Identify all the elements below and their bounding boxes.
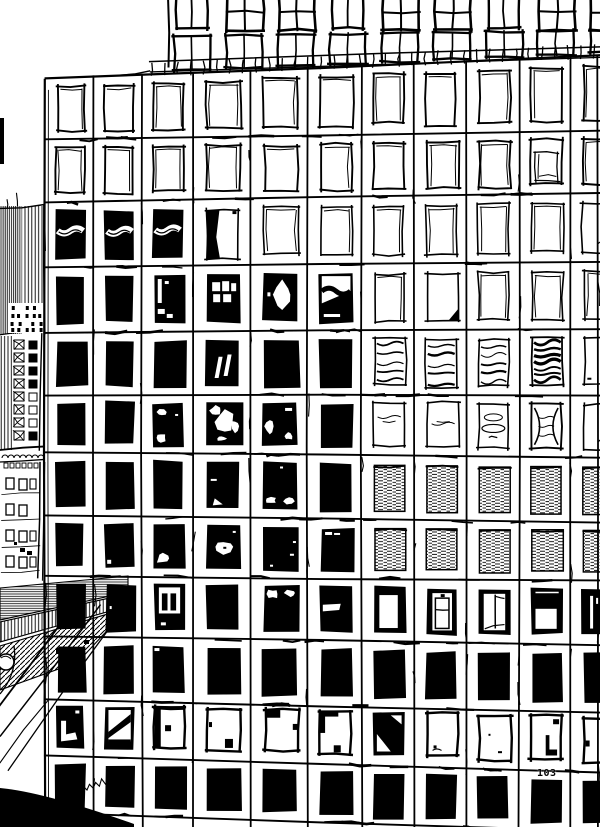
- facade-window: [153, 646, 184, 692]
- facade-window: [207, 525, 241, 568]
- facade-window: [263, 462, 297, 509]
- facade-window: [56, 277, 83, 325]
- facade-window: [479, 590, 510, 634]
- facade-window: [373, 402, 406, 448]
- facade-window: [318, 711, 352, 755]
- facade-window: [55, 146, 85, 194]
- facade-window: [530, 138, 564, 186]
- facade-window: [105, 708, 135, 750]
- facade-window: [320, 772, 353, 815]
- facade-window: [154, 584, 184, 630]
- facade-window: [58, 647, 86, 692]
- facade-window: [425, 652, 456, 699]
- facade-window: [426, 774, 456, 819]
- facade-window: [425, 272, 460, 321]
- facade-window: [478, 653, 509, 700]
- page-number: 103: [537, 768, 557, 779]
- facade-window: [320, 586, 352, 632]
- facade-window: [207, 769, 241, 811]
- facade-window: [477, 202, 510, 256]
- facade-window: [319, 340, 352, 388]
- facade-window: [106, 585, 136, 632]
- facade-window: [374, 465, 405, 511]
- facade-window: [103, 146, 133, 195]
- facade-window: [264, 586, 299, 632]
- facade-window: [104, 524, 134, 568]
- facade-window: [55, 461, 85, 506]
- facade-window: [373, 206, 405, 257]
- facade-window: [583, 530, 600, 571]
- facade-window: [478, 70, 512, 123]
- facade-window: [263, 769, 296, 812]
- facade-window: [262, 77, 299, 129]
- facade-window: [153, 706, 185, 749]
- facade-window: [104, 646, 133, 694]
- facade-window: [478, 141, 512, 190]
- facade-window: [425, 338, 459, 389]
- facade-window: [105, 276, 133, 321]
- facade-window: [530, 68, 564, 123]
- facade-window: [373, 774, 404, 819]
- facade-window: [478, 339, 509, 388]
- facade-window: [105, 401, 134, 443]
- facade-window: [372, 72, 405, 124]
- facade-window: [152, 210, 183, 258]
- facade-window: [104, 211, 133, 260]
- facade-window: [529, 715, 563, 761]
- facade-window: [56, 342, 87, 386]
- neighbor-hatched-highrise: [0, 193, 45, 334]
- facade-window: [530, 402, 563, 450]
- facade-window: [205, 208, 240, 260]
- facade-window: [207, 403, 243, 445]
- facade-window: [532, 271, 565, 321]
- facade-window: [57, 584, 86, 629]
- facade-window: [478, 715, 513, 762]
- facade-window: [263, 527, 298, 571]
- facade-window: [583, 467, 600, 514]
- facade-window: [426, 401, 460, 447]
- facade-window: [262, 403, 297, 445]
- facade-window: [264, 341, 300, 388]
- facade-window: [152, 82, 185, 130]
- facade-window: [426, 529, 457, 570]
- facade-window: [263, 206, 300, 256]
- facade-window: [58, 404, 85, 445]
- facade-window: [106, 342, 133, 387]
- upper-tower: [46, 0, 600, 78]
- facade-window: [321, 404, 353, 447]
- facade-window: [205, 143, 241, 191]
- facade-window: [479, 467, 511, 512]
- facade-window: [584, 653, 600, 703]
- illustration-canvas: 103: [0, 0, 600, 827]
- facade-window: [206, 708, 241, 752]
- facade-window: [427, 466, 458, 513]
- facade-window: [153, 145, 186, 192]
- facade-window: [427, 589, 456, 635]
- facade-window: [479, 530, 510, 573]
- facade-window: [375, 586, 406, 632]
- facade-window: [208, 648, 241, 694]
- facade-window: [263, 708, 299, 752]
- facade-window: [321, 206, 353, 256]
- facade-window: [531, 467, 561, 515]
- facade-window: [56, 706, 83, 748]
- facade-window: [205, 81, 243, 130]
- building-illustration: [0, 0, 600, 827]
- facade-window: [320, 143, 353, 192]
- facade-window: [206, 585, 238, 629]
- facade-window: [531, 588, 562, 634]
- facade-window: [104, 84, 135, 132]
- facade-window: [318, 75, 354, 128]
- facade-window: [155, 767, 186, 809]
- facade-window: [373, 712, 404, 755]
- facade-window: [56, 523, 83, 565]
- facade-window: [532, 530, 563, 571]
- facade-window: [373, 142, 406, 189]
- neighbor-cornice: [0, 447, 44, 463]
- facade-window: [530, 337, 563, 386]
- facade-window: [426, 712, 458, 757]
- facade-window: [207, 462, 239, 507]
- facade-window: [264, 145, 300, 192]
- facade-window: [375, 273, 406, 323]
- facade-window: [426, 141, 460, 189]
- facade-window: [155, 275, 185, 322]
- facade-window: [56, 210, 86, 260]
- facade-window: [478, 271, 510, 320]
- facade-window: [263, 274, 297, 321]
- facade-window: [583, 781, 600, 823]
- facade-window: [106, 462, 134, 509]
- facade-window: [373, 337, 407, 385]
- facade-window: [425, 72, 456, 126]
- neighbor-lower-building: [1, 463, 45, 581]
- facade-window: [477, 776, 508, 817]
- neighbor-midrise-lattice: [0, 334, 42, 450]
- facade-window: [207, 275, 240, 323]
- facade-window: [153, 403, 184, 446]
- facade-window: [531, 780, 562, 823]
- facade-window: [319, 274, 353, 324]
- facade-window: [55, 764, 85, 808]
- facade-window: [154, 525, 185, 569]
- roof-railing: [46, 45, 600, 78]
- facade-window: [374, 650, 406, 699]
- facade-window: [320, 463, 351, 512]
- facade-window: [425, 204, 458, 256]
- facade-window: [375, 529, 406, 571]
- facade-window: [533, 653, 563, 702]
- facade-window: [205, 340, 238, 385]
- facade-window: [531, 203, 565, 254]
- facade-window: [477, 403, 509, 450]
- facade-window: [582, 589, 600, 633]
- facade-window: [57, 84, 86, 132]
- facade-window: [106, 766, 135, 807]
- facade-window: [154, 460, 183, 508]
- facade-window: [321, 649, 352, 696]
- facade-window: [321, 528, 354, 571]
- facade-window: [154, 341, 186, 388]
- facade-window: [262, 649, 296, 696]
